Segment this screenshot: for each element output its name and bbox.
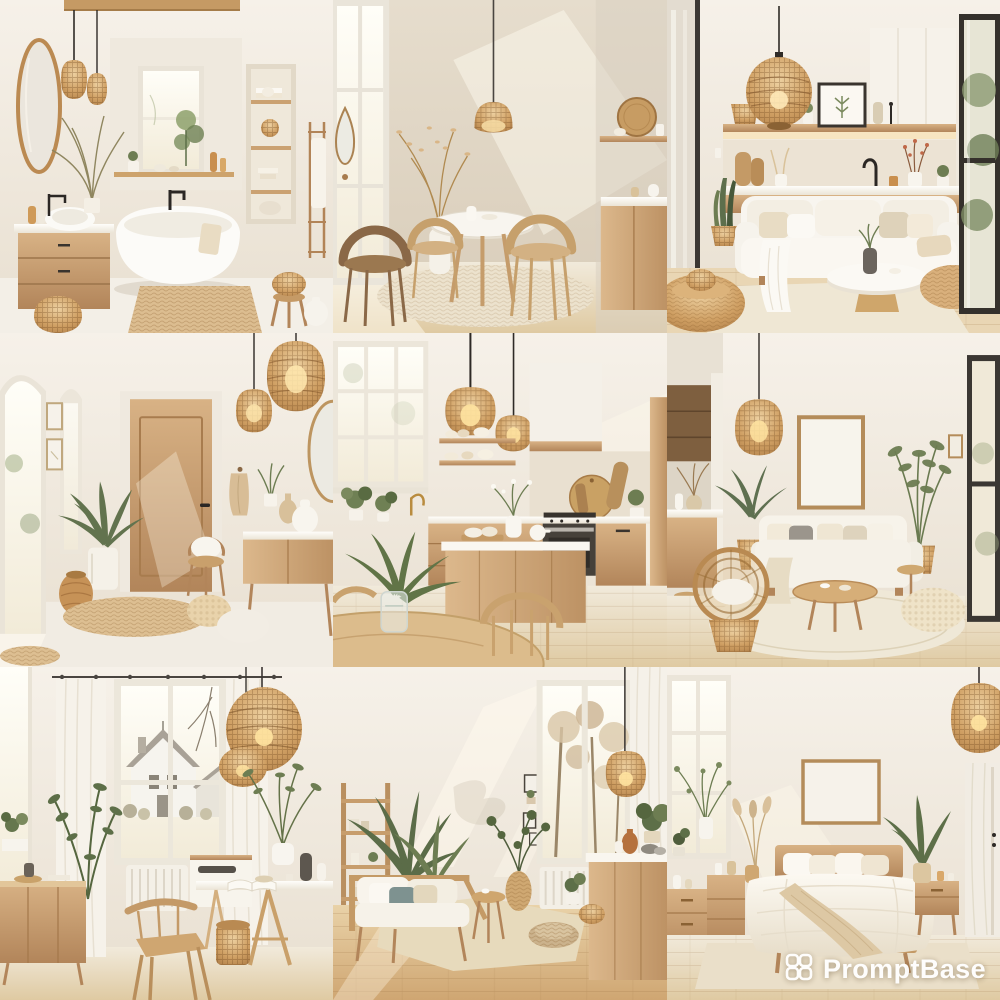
coat-hook-towel [229,467,249,516]
dining-nook-illustration [333,0,667,333]
photo-collage: PromptBase [0,0,1000,1000]
ceiling-beam [64,0,240,11]
pillow [861,855,889,875]
closet-curtain [965,763,1000,937]
photo-entryway [0,333,333,667]
photo-bedroom [667,667,1000,1000]
window [138,66,204,174]
small-frame [949,435,962,457]
living-daybed-illustration [333,667,667,1000]
blank-poster-frame [799,417,863,507]
living-frame-illustration [667,333,1000,667]
kitchen-counter [596,0,667,333]
beige-throw [916,234,952,257]
office-dining-illustration [0,667,333,1000]
bulb-glow [770,91,788,109]
photo-living-frame [667,333,1000,667]
bulb-glow [460,404,480,426]
range-hood [530,363,602,451]
pillow [783,853,813,875]
boucle-pouf [901,588,965,632]
narrow-window [0,667,32,891]
photo-kitchen [333,333,667,667]
bedroom-illustration [667,667,1000,1000]
radiator [540,867,590,909]
botanical-frame [819,84,865,126]
tub-towel [198,223,222,255]
dark-vase [863,248,877,274]
bulb-glow [750,420,768,442]
pillow [879,212,909,238]
patterned-pillow [413,885,437,905]
bathroom-illustration [0,0,333,333]
pillow [759,212,789,238]
niche-shelves [246,64,296,224]
pillow [835,853,865,875]
dark-vase [300,853,312,881]
bulb-glow [619,772,633,786]
window [967,355,1000,622]
photo-office-dining [0,667,333,1000]
sill-planter [2,839,28,851]
photo-living-daybed [333,667,667,1000]
braided-pouf [529,922,579,948]
entryway-illustration [0,333,333,667]
bulb-glow [255,728,273,746]
pillow [809,855,837,875]
bulb-glow [285,365,307,393]
arched-niche [60,389,82,553]
photo-living-sofa [667,0,1000,333]
amber-vase [622,832,638,854]
pantry-door [650,397,667,602]
window [333,341,428,493]
door-handle [200,504,210,508]
round-mirror [18,40,60,172]
photo-dining-nook [333,0,667,333]
photo-bathroom [0,0,333,333]
white-pouf [217,609,269,643]
promptbase-knot-icon [784,952,814,987]
watermark-text: PromptBase [823,954,986,985]
wicker-basket [34,296,82,333]
round-rug [377,265,594,327]
blank-frame [803,761,879,823]
kitchen-illustration [333,333,667,667]
countertop [428,517,667,524]
light-switch [715,148,721,158]
chair-cushion [191,537,221,559]
pillow [907,214,933,238]
promptbase-watermark: PromptBase [784,952,986,987]
countertop [723,186,959,195]
pillow [787,214,815,238]
woven-basket [216,920,250,965]
chair-cushion [712,579,754,605]
arched-window [0,375,46,667]
large-window [959,14,1000,314]
window-house-view [114,679,226,865]
bulb-glow [971,715,987,731]
living-sofa-illustration [667,0,1000,333]
photo-grid [0,0,1000,1000]
jute-rug [128,286,262,333]
